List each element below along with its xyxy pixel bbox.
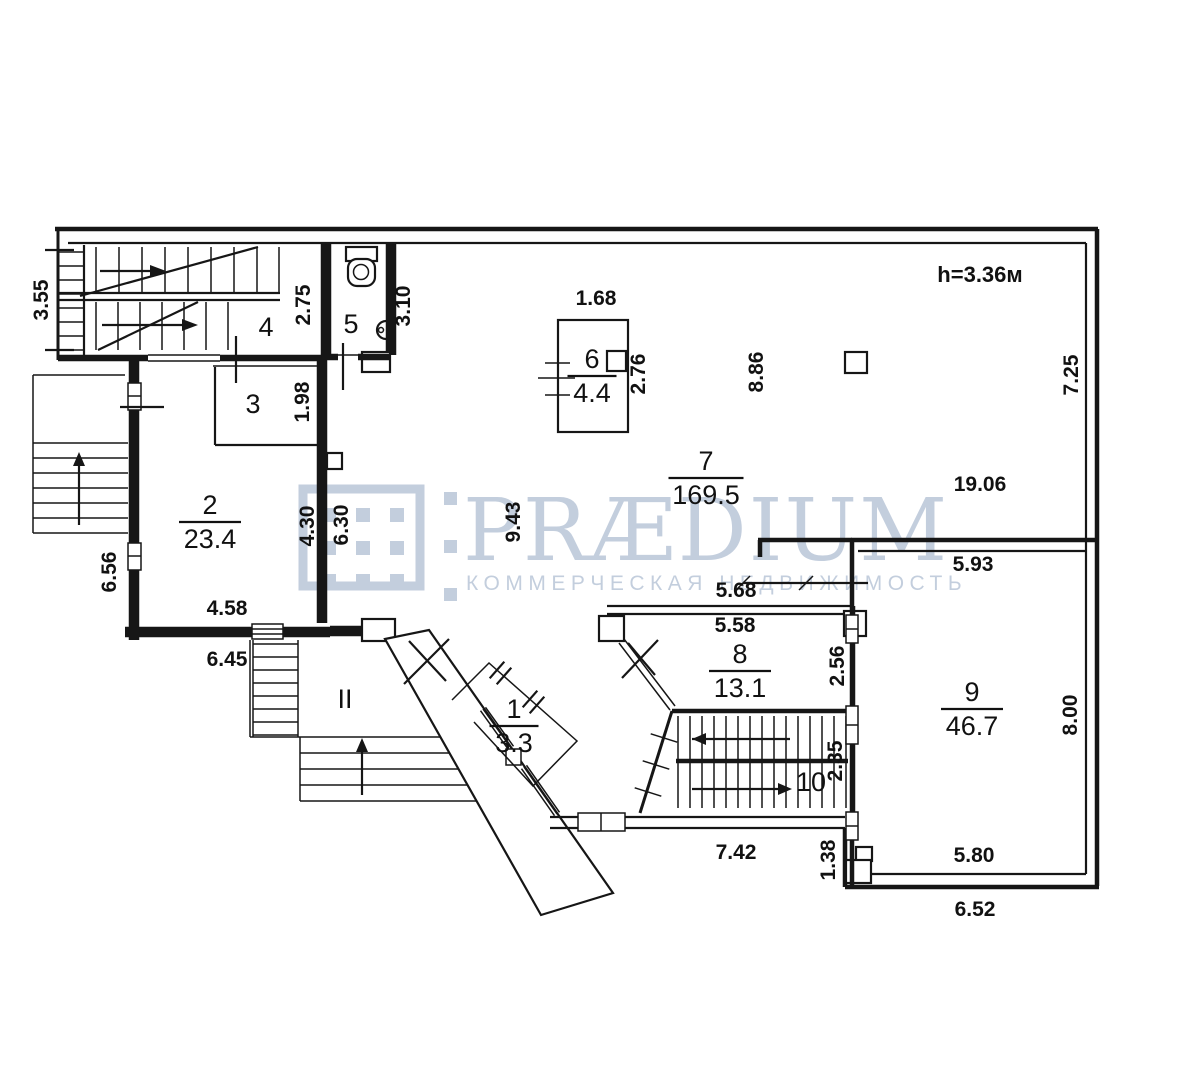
stair-up-arrow: [182, 319, 198, 331]
svg-text:8: 8: [732, 639, 747, 669]
duct-block: [607, 351, 626, 371]
dimension-label: 6.56: [98, 552, 121, 593]
porch-up-arrow: [73, 452, 85, 466]
dimension-label: 5.68: [716, 579, 757, 602]
dimension-label: 4.58: [207, 597, 248, 620]
dimension-label: 1.98: [291, 381, 314, 422]
room-label: 223.4: [179, 490, 241, 554]
svg-text:II: II: [337, 684, 352, 714]
column: [599, 616, 624, 641]
svg-text:1: 1: [506, 694, 521, 724]
dimension-label: 4.30: [296, 506, 319, 547]
dimension-label: 7.25: [1060, 354, 1083, 395]
room-label: 5: [343, 309, 358, 339]
dimension-label: 6.30: [330, 505, 353, 546]
room-label: 7169.5: [669, 446, 744, 510]
svg-text:2: 2: [202, 490, 217, 520]
dimension-label: 3.10: [392, 286, 415, 327]
stairwell-room4: [58, 247, 326, 361]
svg-text:23.4: 23.4: [184, 524, 237, 554]
dimension-label: 2.35: [824, 740, 847, 781]
room-label: 946.7: [941, 677, 1003, 741]
stair-arrow: [778, 783, 792, 795]
dimension-label: 7.42: [716, 841, 757, 864]
dimension-label: 5.58: [715, 614, 756, 637]
floor-plan-page: PRÆDIUM КОММЕРЧЕСКАЯ НЕДВИЖИМОСТЬ: [0, 0, 1200, 1080]
room-label: II: [337, 684, 352, 714]
entrance-ramp: [385, 630, 613, 915]
dimension-label: 2.75: [292, 284, 315, 325]
column: [845, 352, 867, 373]
room-label: 813.1: [709, 639, 771, 703]
svg-text:13.1: 13.1: [714, 673, 767, 703]
dimension-label: 3.55: [30, 279, 53, 320]
dimension-label: 8.00: [1059, 695, 1082, 736]
svg-text:9: 9: [964, 677, 979, 707]
svg-text:46.7: 46.7: [946, 711, 999, 741]
svg-text:6: 6: [584, 344, 599, 374]
dimension-label: 8.86: [745, 352, 768, 393]
floor-plan-svg: PRÆDIUM КОММЕРЧЕСКАЯ НЕДВИЖИМОСТЬ: [0, 0, 1200, 1080]
dimension-label: 19.06: [954, 473, 1007, 496]
dimension-label: 9.43: [502, 502, 525, 543]
dimension-label: 5.93: [953, 553, 994, 576]
dimension-label: 2.76: [627, 354, 650, 395]
stair-arrow: [692, 733, 706, 745]
dimension-label: 5.80: [954, 844, 995, 867]
room-label: 3: [245, 389, 260, 419]
svg-text:3: 3: [245, 389, 260, 419]
left-porch-steps: [33, 375, 128, 533]
door-swing-mark: [622, 640, 658, 678]
dimension-label: 1.68: [576, 287, 617, 310]
svg-text:5: 5: [343, 309, 358, 339]
sink-drain-icon: [379, 328, 384, 333]
dimension-label: 2.56: [826, 646, 849, 687]
svg-text:4: 4: [258, 312, 273, 342]
svg-text:4.4: 4.4: [573, 378, 611, 408]
svg-text:7: 7: [698, 446, 713, 476]
dimension-label: 6.52: [955, 898, 996, 921]
room-label: 10: [796, 767, 826, 797]
dimension-label: 6.45: [207, 648, 248, 671]
svg-text:3.3: 3.3: [495, 728, 533, 758]
porch-up-arrow: [356, 738, 368, 752]
toilet-bowl-icon: [348, 259, 375, 286]
door-threshold: [252, 624, 283, 639]
ceiling-height-note: h=3.36м: [937, 262, 1022, 287]
svg-text:169.5: 169.5: [672, 480, 740, 510]
room-label: 4: [258, 312, 273, 342]
svg-text:10: 10: [796, 767, 826, 797]
dimension-label: 1.38: [817, 839, 840, 880]
wall-column: [327, 453, 342, 469]
room-label: 13.3: [490, 694, 539, 758]
